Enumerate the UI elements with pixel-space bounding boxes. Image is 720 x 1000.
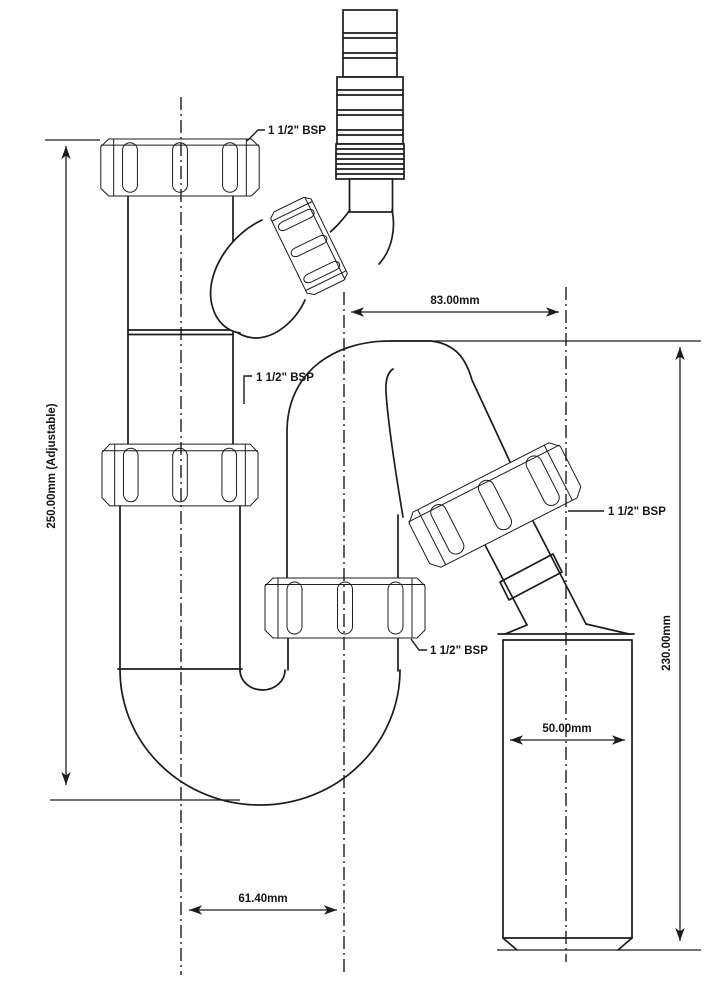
inlet-nut-top xyxy=(101,139,259,196)
outlet-swivel-nut xyxy=(405,439,584,571)
bsp-label-inlet-mid-text: 1 1/2" BSP xyxy=(256,372,314,384)
bsp-label-trap-text: 1 1/2" BSP xyxy=(430,645,488,657)
technical-drawing: 250.00mm (Adjustable) 230.00mm 83.00mm 5… xyxy=(0,0,720,1000)
bsp-label-outlet: 1 1/2" BSP xyxy=(568,506,666,518)
trap-body-nut xyxy=(265,578,425,638)
dimension-bottom-span: 61.40mm xyxy=(189,893,337,910)
bsp-label-inlet-mid: 1 1/2" BSP xyxy=(244,372,314,404)
dim-label-outlet-height: 230.00mm xyxy=(661,615,673,671)
centerlines xyxy=(181,97,566,975)
dim-label-outlet-width: 50.00mm xyxy=(542,723,591,735)
dimension-outlet-width: 50.00mm xyxy=(510,723,625,740)
drawing-canvas: 250.00mm (Adjustable) 230.00mm 83.00mm 5… xyxy=(0,0,720,1000)
bsp-label-inlet-top: 1 1/2" BSP xyxy=(247,125,326,141)
hose-tail-connector xyxy=(336,10,404,212)
outlet-diagonal-pipe xyxy=(485,521,629,634)
dim-label-bottom-span: 61.40mm xyxy=(238,893,287,905)
bsp-label-inlet-top-text: 1 1/2" BSP xyxy=(268,125,326,137)
dim-label-inlet-height: 250.00mm (Adjustable) xyxy=(46,403,58,528)
inlet-nut-middle xyxy=(102,444,258,506)
bsp-label-trap: 1 1/2" BSP xyxy=(411,639,488,657)
trap-inlet-tube xyxy=(118,506,242,669)
elbow-fitting xyxy=(211,194,394,338)
bsp-label-outlet-text: 1 1/2" BSP xyxy=(608,506,666,518)
dim-label-top-span: 83.00mm xyxy=(430,295,479,307)
dimension-top-span: 83.00mm xyxy=(351,295,559,312)
trap-u-bend xyxy=(120,638,400,805)
